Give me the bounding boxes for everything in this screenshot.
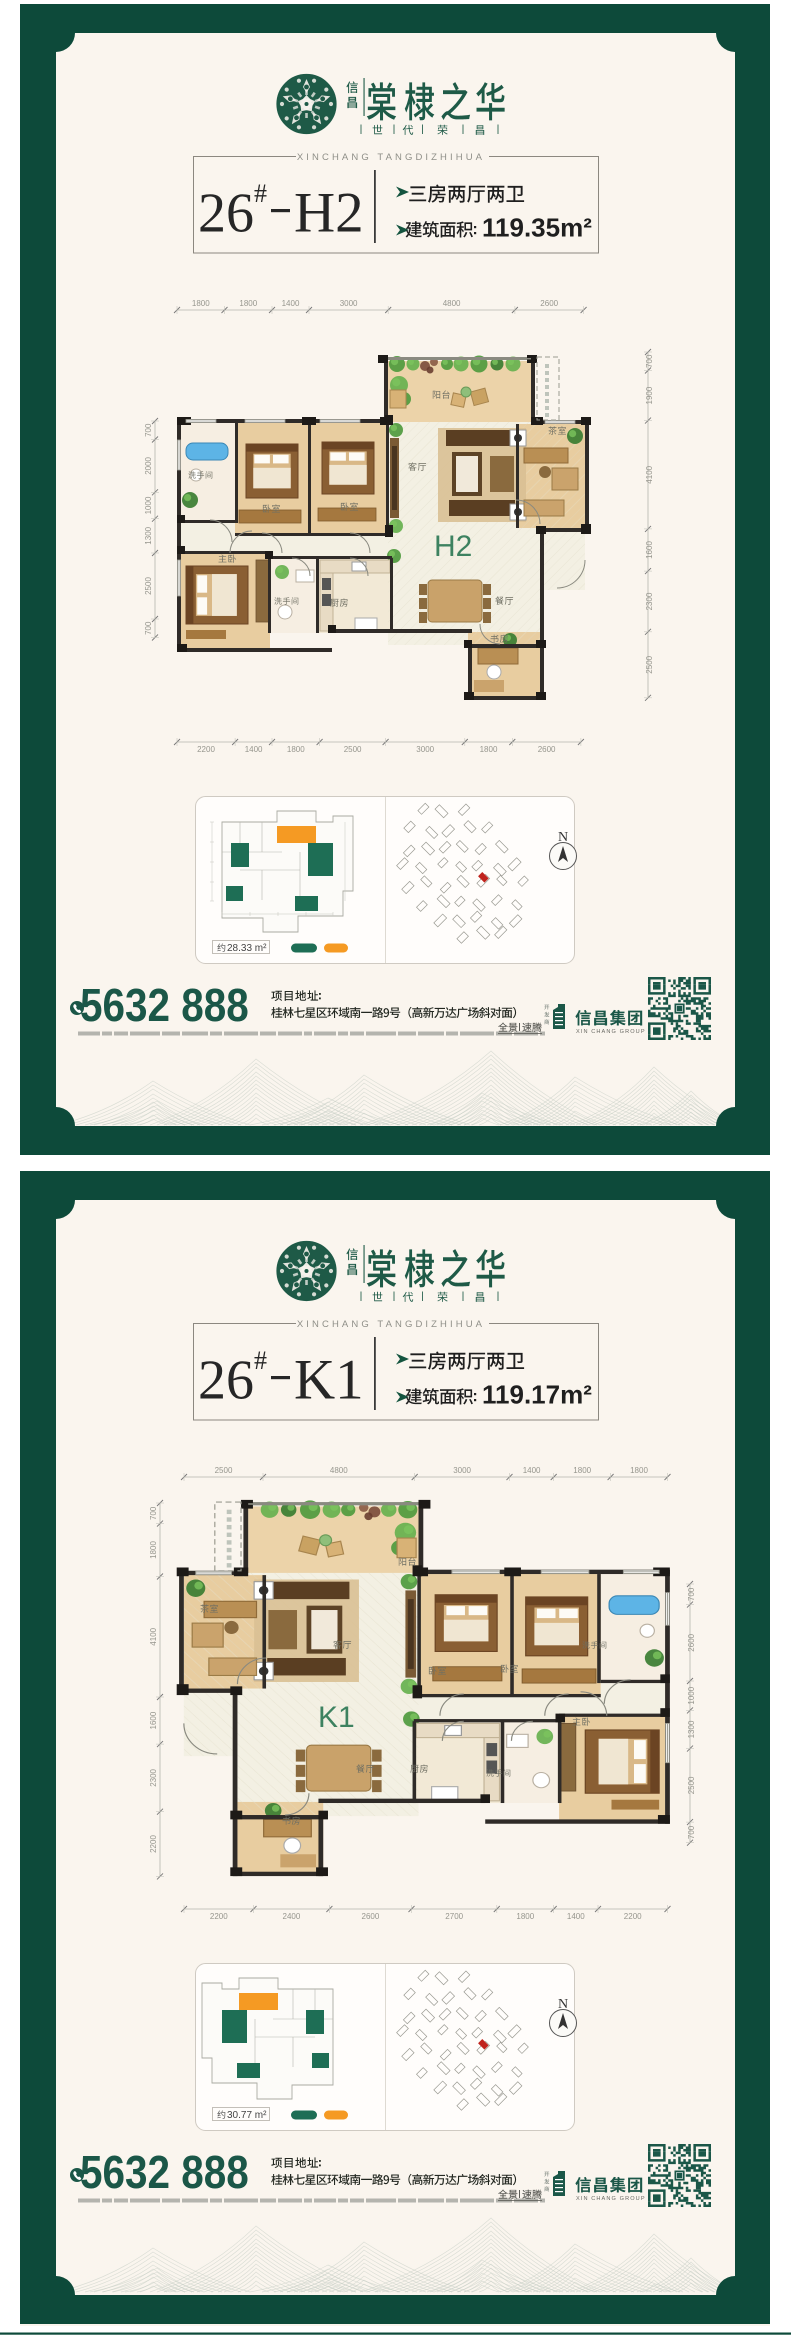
svg-text:1800: 1800 xyxy=(239,299,257,308)
svg-text:1600: 1600 xyxy=(149,1711,158,1729)
svg-text:1300: 1300 xyxy=(144,526,153,544)
svg-text:1000: 1000 xyxy=(144,496,153,514)
svg-text:700: 700 xyxy=(144,621,153,635)
svg-text:1300: 1300 xyxy=(687,1720,696,1738)
svg-text:119.35m²: 119.35m² xyxy=(482,213,592,243)
svg-text:1800: 1800 xyxy=(480,745,498,754)
svg-text:1400: 1400 xyxy=(245,745,263,754)
svg-text:2500: 2500 xyxy=(645,655,654,673)
svg-text:700: 700 xyxy=(144,423,153,437)
svg-text:XIN CHANG GROUP: XIN CHANG GROUP xyxy=(576,1029,646,1035)
svg-text:1800: 1800 xyxy=(287,745,305,754)
svg-text:2700: 2700 xyxy=(445,1912,463,1921)
svg-text:1600: 1600 xyxy=(645,541,654,559)
svg-text:1400: 1400 xyxy=(567,1912,585,1921)
svg-text:2300: 2300 xyxy=(645,592,654,610)
svg-text:28.33 m²: 28.33 m² xyxy=(227,943,267,954)
svg-text:700: 700 xyxy=(149,1506,158,1520)
svg-text:4100: 4100 xyxy=(149,1627,158,1645)
svg-text:3000: 3000 xyxy=(416,745,434,754)
svg-text:2200: 2200 xyxy=(197,745,215,754)
svg-text:2500: 2500 xyxy=(144,577,153,595)
svg-text:3000: 3000 xyxy=(453,1466,471,1475)
svg-text:1800: 1800 xyxy=(630,1466,648,1475)
svg-text:3000: 3000 xyxy=(340,299,358,308)
svg-text:2600: 2600 xyxy=(540,299,558,308)
svg-text:1800: 1800 xyxy=(192,299,210,308)
svg-text:#: # xyxy=(254,179,267,208)
svg-text:2600: 2600 xyxy=(687,1633,696,1651)
svg-text:H2: H2 xyxy=(434,530,472,563)
svg-text:2200: 2200 xyxy=(624,1912,642,1921)
svg-text:2600: 2600 xyxy=(362,1912,380,1921)
svg-text:1000: 1000 xyxy=(687,1686,696,1704)
svg-text:26: 26 xyxy=(198,183,254,245)
svg-text:2600: 2600 xyxy=(538,745,556,754)
svg-text:K1: K1 xyxy=(294,1349,364,1412)
svg-text:1800: 1800 xyxy=(149,1541,158,1559)
svg-text:2200: 2200 xyxy=(149,1835,158,1853)
svg-text:4800: 4800 xyxy=(443,299,461,308)
svg-text:700: 700 xyxy=(687,1825,696,1839)
svg-text:2500: 2500 xyxy=(215,1466,233,1475)
svg-text:1800: 1800 xyxy=(573,1466,591,1475)
svg-text:K1: K1 xyxy=(318,1701,355,1734)
svg-text:1400: 1400 xyxy=(282,299,300,308)
svg-text:2000: 2000 xyxy=(144,456,153,474)
svg-text:1400: 1400 xyxy=(523,1466,541,1475)
svg-text:H2: H2 xyxy=(294,182,364,245)
svg-text:2500: 2500 xyxy=(344,745,362,754)
svg-text:2400: 2400 xyxy=(283,1912,301,1921)
svg-text:1900: 1900 xyxy=(645,386,654,404)
svg-text:2500: 2500 xyxy=(687,1776,696,1794)
svg-text:5632 888: 5632 888 xyxy=(80,981,249,1032)
svg-text:1800: 1800 xyxy=(516,1912,534,1921)
svg-text:2200: 2200 xyxy=(210,1912,228,1921)
svg-text:2300: 2300 xyxy=(149,1768,158,1786)
svg-text:119.17m²: 119.17m² xyxy=(482,1380,592,1410)
svg-text:700: 700 xyxy=(687,1587,696,1601)
svg-text:4800: 4800 xyxy=(330,1466,348,1475)
svg-text:700: 700 xyxy=(645,354,654,368)
svg-text:30.77 m²: 30.77 m² xyxy=(227,2110,267,2121)
svg-text:XINCHANG TANGDIZHIHUA: XINCHANG TANGDIZHIHUA xyxy=(297,152,485,163)
svg-text:4100: 4100 xyxy=(645,465,654,483)
